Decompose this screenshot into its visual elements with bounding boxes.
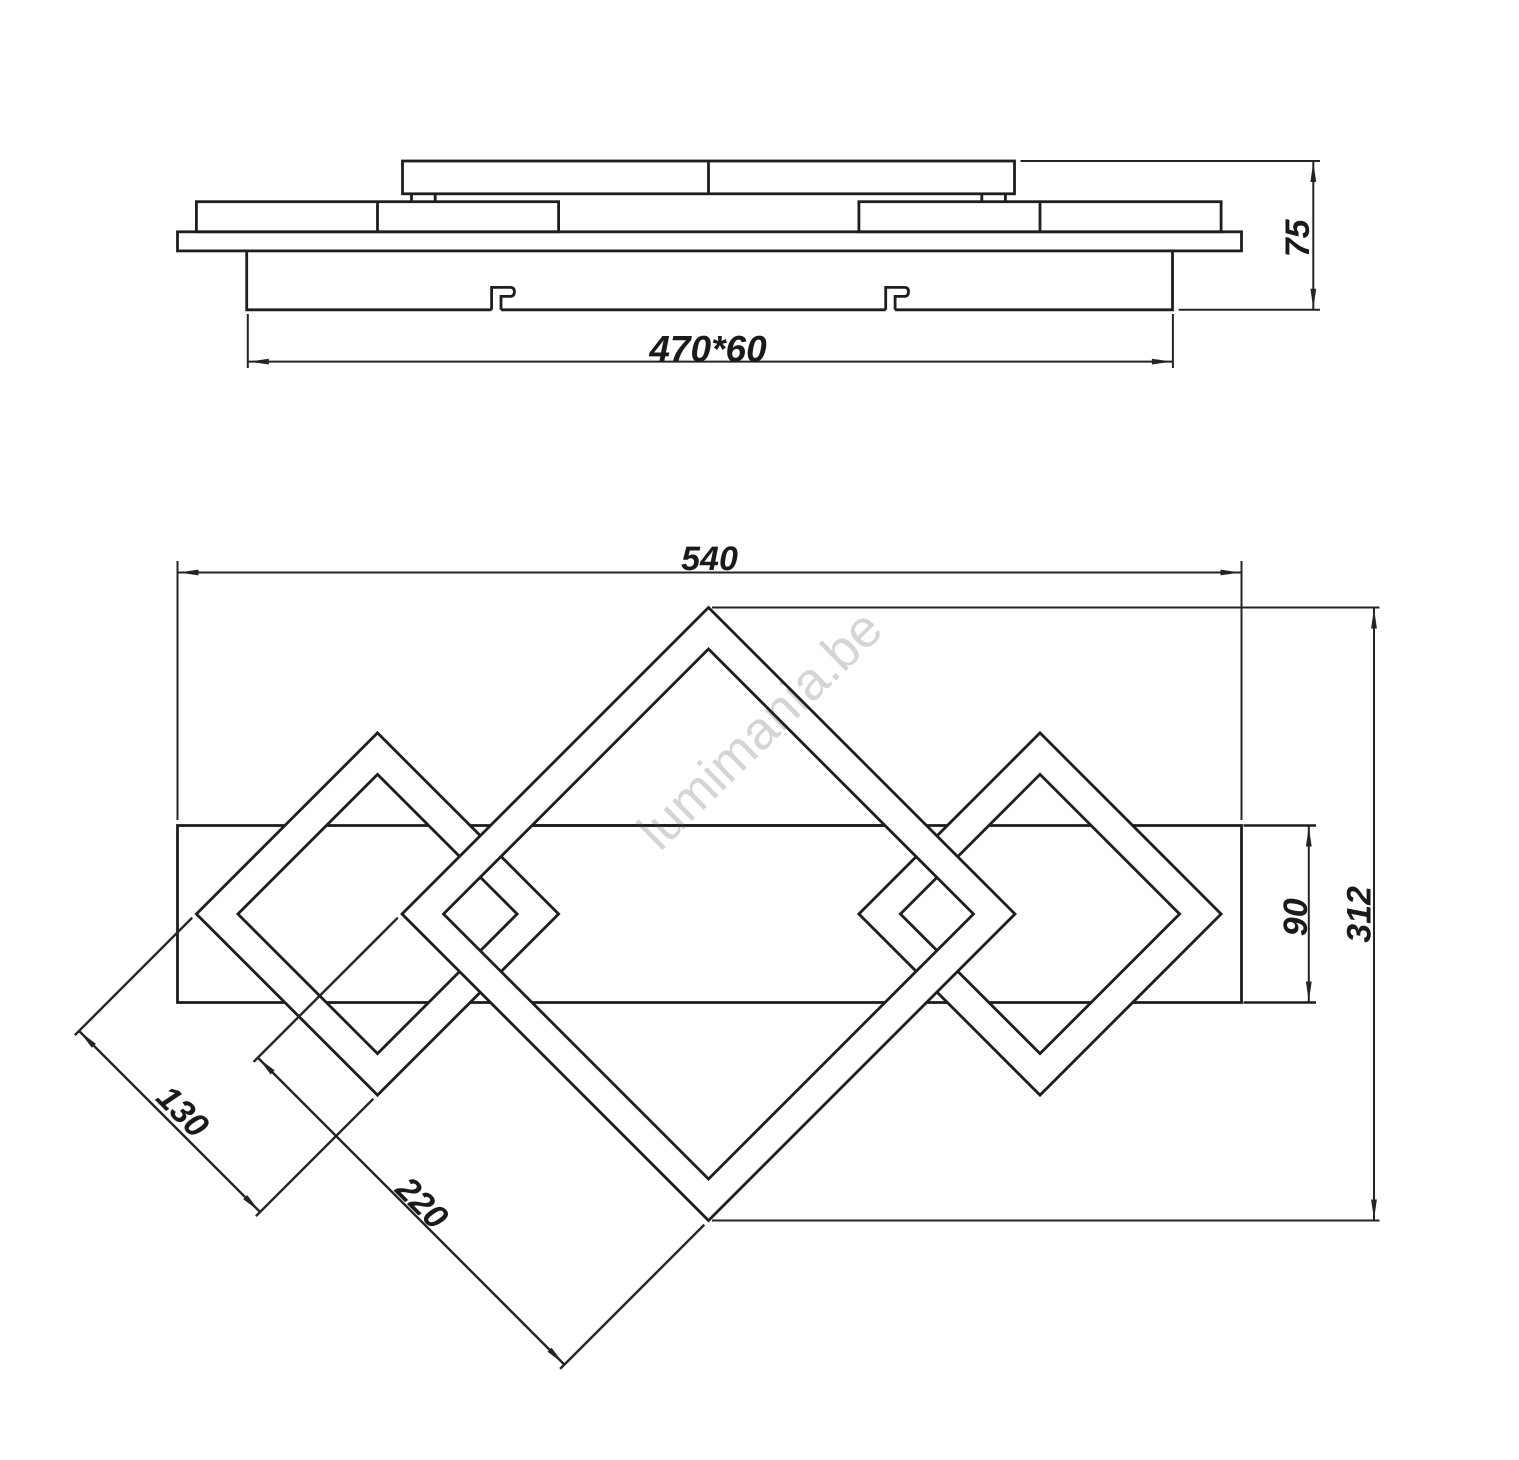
svg-text:90: 90: [1277, 898, 1315, 936]
svg-text:312: 312: [1341, 886, 1379, 943]
svg-text:470*60: 470*60: [648, 328, 767, 369]
svg-text:540: 540: [681, 540, 738, 578]
svg-text:75: 75: [1279, 218, 1317, 257]
